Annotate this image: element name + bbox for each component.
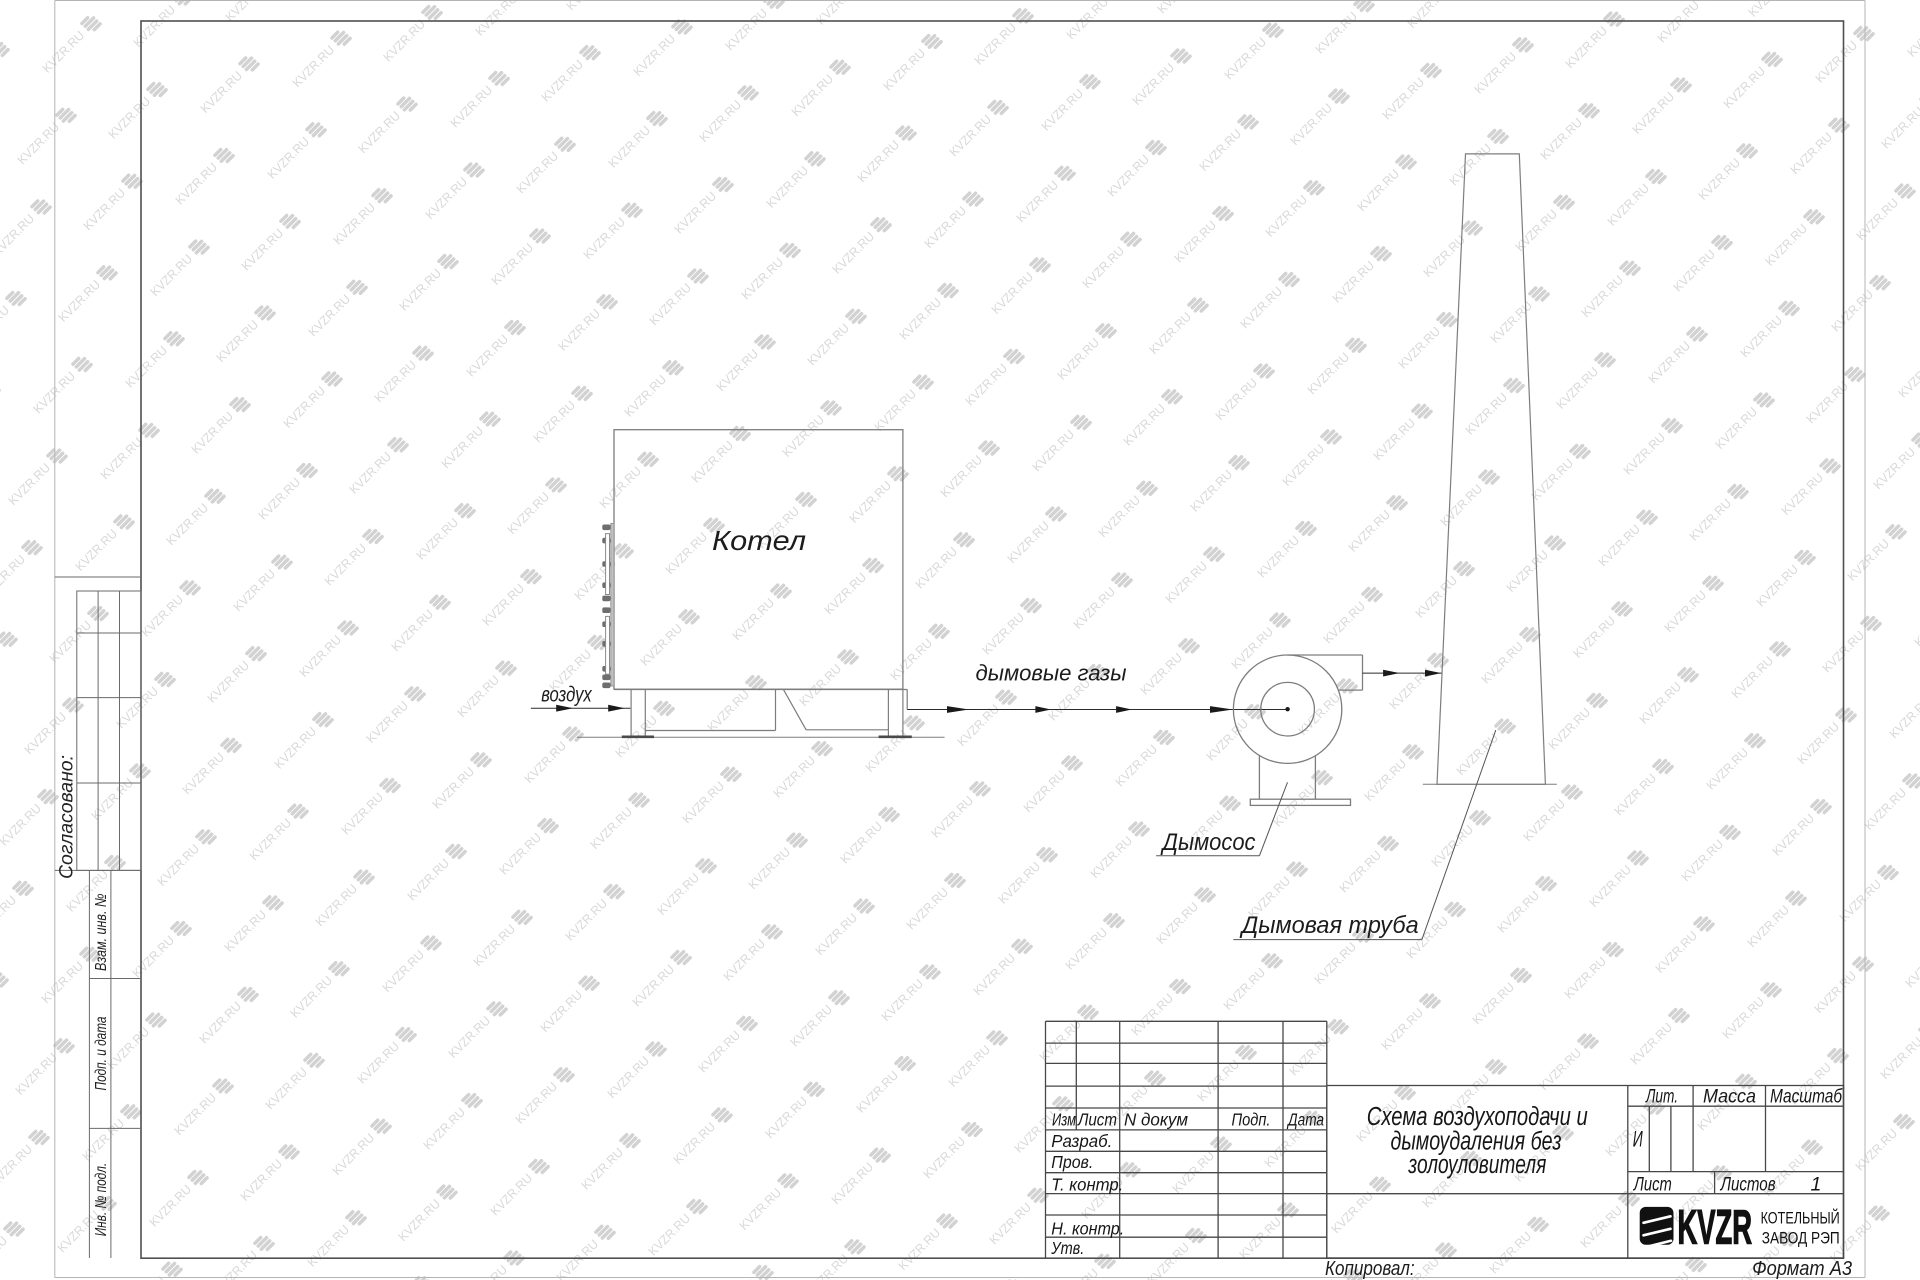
svg-text:Н. контр.: Н. контр. — [1051, 1219, 1124, 1239]
svg-text:Взам. инв. №: Взам. инв. № — [93, 894, 110, 972]
svg-text:Масса: Масса — [1703, 1087, 1756, 1108]
svg-text:Подп. и дата: Подп. и дата — [93, 1016, 110, 1090]
svg-text:И: И — [1633, 1127, 1643, 1152]
svg-text:КОТЕЛЬНЫЙ: КОТЕЛЬНЫЙ — [1761, 1209, 1840, 1228]
svg-text:Котел: Котел — [712, 525, 806, 556]
svg-text:Т. контр.: Т. контр. — [1051, 1175, 1123, 1195]
svg-text:Пров.: Пров. — [1051, 1152, 1093, 1172]
svg-text:N докум: N докум — [1124, 1110, 1188, 1130]
svg-text:Лист: Лист — [1632, 1174, 1672, 1196]
svg-text:Формат А3: Формат А3 — [1752, 1258, 1852, 1280]
svg-text:Инв. № подл.: Инв. № подл. — [93, 1163, 110, 1237]
svg-text:1: 1 — [1811, 1174, 1822, 1196]
svg-text:дымовые газы: дымовые газы — [976, 660, 1127, 685]
svg-text:золоуловителя: золоуловителя — [1408, 1151, 1547, 1179]
svg-text:Разраб.: Разраб. — [1051, 1131, 1112, 1151]
svg-text:Лист: Лист — [1077, 1110, 1117, 1130]
svg-text:Подп.: Подп. — [1232, 1110, 1271, 1130]
svg-text:Масштаб: Масштаб — [1770, 1087, 1843, 1108]
svg-text:Дымосос: Дымосос — [1160, 829, 1256, 856]
svg-text:Копировал:: Копировал: — [1325, 1258, 1415, 1280]
svg-text:Согласовано:: Согласовано: — [57, 755, 78, 879]
svg-text:Листов: Листов — [1719, 1174, 1776, 1196]
svg-text:Лит.: Лит. — [1645, 1087, 1678, 1108]
svg-text:Изм: Изм — [1052, 1110, 1076, 1130]
svg-text:ЗАВОД РЭП: ЗАВОД РЭП — [1762, 1230, 1840, 1248]
svg-text:KVZR: KVZR — [1678, 1202, 1753, 1255]
svg-text:Утв.: Утв. — [1050, 1238, 1084, 1258]
svg-text:воздух: воздух — [541, 684, 593, 707]
svg-text:Дата: Дата — [1286, 1110, 1324, 1130]
svg-text:Дымовая труба: Дымовая труба — [1239, 912, 1419, 939]
